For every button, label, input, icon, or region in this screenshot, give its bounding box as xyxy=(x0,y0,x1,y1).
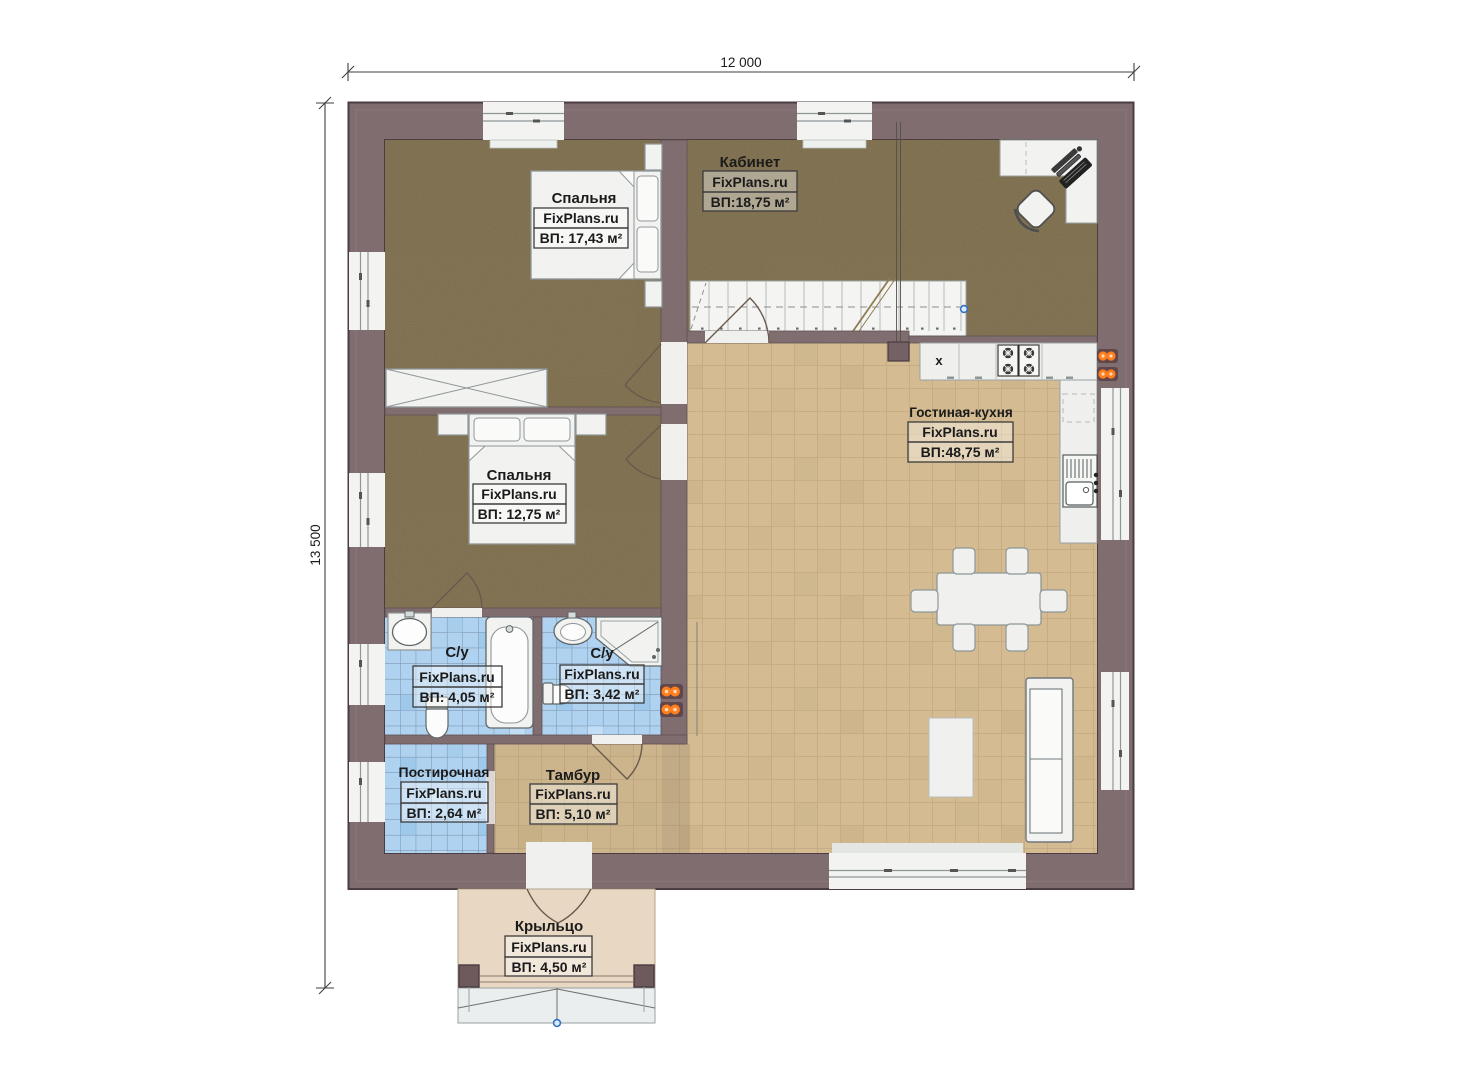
svg-text:ВП: 4,05 м²: ВП: 4,05 м² xyxy=(420,689,495,705)
svg-text:Гостиная-кухня: Гостиная-кухня xyxy=(909,405,1012,420)
svg-text:FixPlans.ru: FixPlans.ru xyxy=(922,424,997,440)
svg-text:FixPlans.ru: FixPlans.ru xyxy=(535,786,610,802)
svg-text:С/у: С/у xyxy=(590,645,614,662)
svg-text:12 000: 12 000 xyxy=(720,55,761,70)
svg-text:Постирочная: Постирочная xyxy=(399,764,490,780)
svg-text:FixPlans.ru: FixPlans.ru xyxy=(712,174,787,190)
svg-text:ВП: 17,43 м²: ВП: 17,43 м² xyxy=(540,230,623,246)
svg-text:FixPlans.ru: FixPlans.ru xyxy=(543,210,618,226)
svg-text:Кабинет: Кабинет xyxy=(720,154,781,171)
svg-text:x: x xyxy=(935,353,943,368)
svg-text:FixPlans.ru: FixPlans.ru xyxy=(481,486,556,502)
svg-text:С/у: С/у xyxy=(445,644,469,661)
svg-text:FixPlans.ru: FixPlans.ru xyxy=(419,669,494,685)
svg-text:Спальня: Спальня xyxy=(487,467,552,484)
svg-text:ВП: 3,42 м²: ВП: 3,42 м² xyxy=(565,686,640,702)
svg-text:ВП: 4,50 м²: ВП: 4,50 м² xyxy=(512,959,587,975)
svg-text:FixPlans.ru: FixPlans.ru xyxy=(511,939,586,955)
svg-text:ВП: 5,10 м²: ВП: 5,10 м² xyxy=(536,806,611,822)
svg-text:13 500: 13 500 xyxy=(308,524,323,565)
svg-text:FixPlans.ru: FixPlans.ru xyxy=(406,785,481,801)
svg-text:ВП: 12,75 м²: ВП: 12,75 м² xyxy=(478,506,561,522)
svg-text:FixPlans.ru: FixPlans.ru xyxy=(564,666,639,682)
svg-text:ВП: 2,64 м²: ВП: 2,64 м² xyxy=(407,805,482,821)
svg-text:Спальня: Спальня xyxy=(552,190,617,207)
svg-text:Крыльцо: Крыльцо xyxy=(515,918,583,935)
svg-text:ВП:48,75 м²: ВП:48,75 м² xyxy=(921,444,1000,460)
svg-text:ВП:18,75 м²: ВП:18,75 м² xyxy=(711,194,790,210)
svg-text:Тамбур: Тамбур xyxy=(546,767,600,784)
